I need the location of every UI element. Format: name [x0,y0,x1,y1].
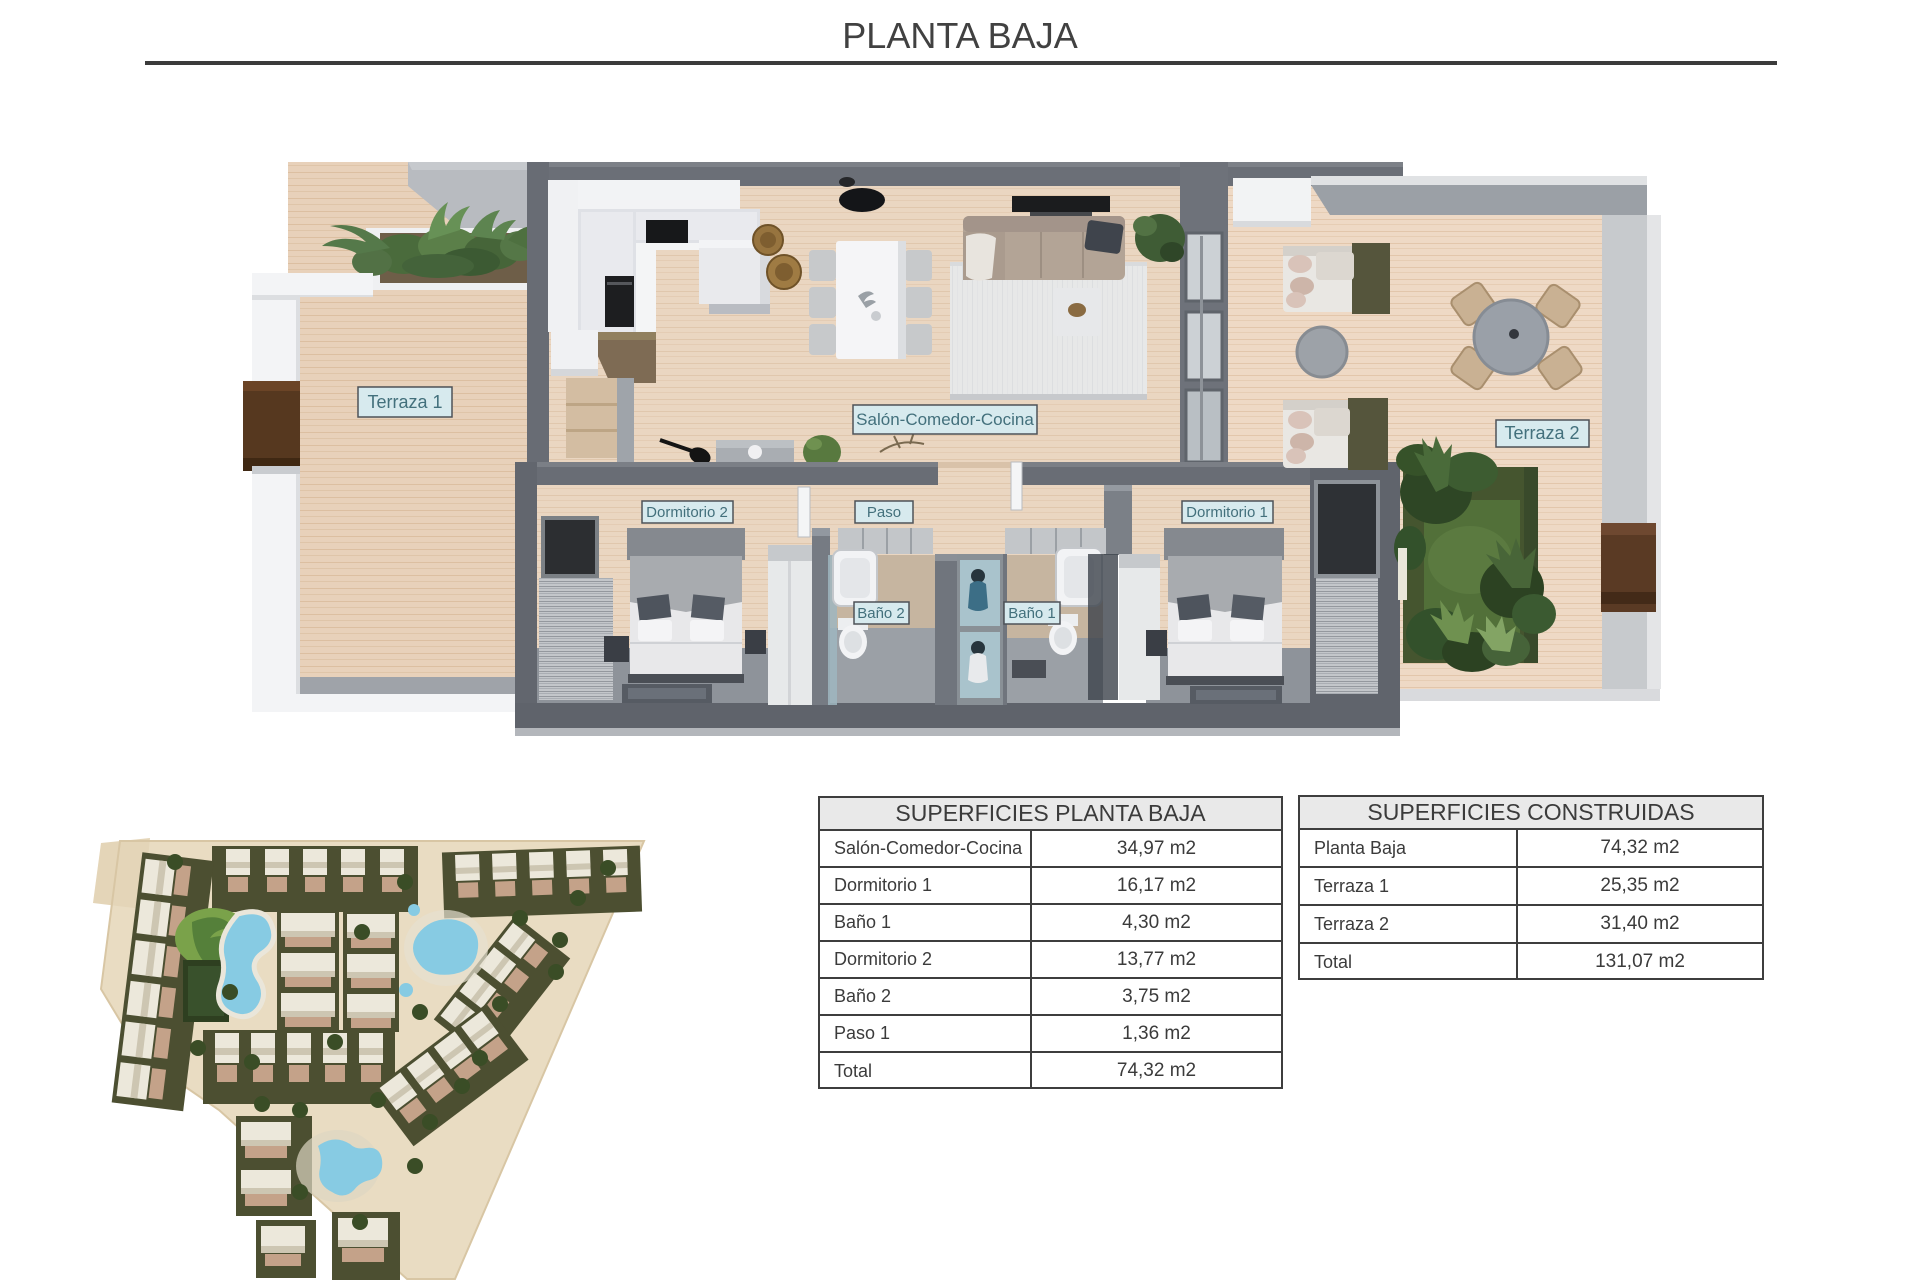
svg-text:Terraza 2: Terraza 2 [1504,423,1579,443]
svg-text:Paso: Paso [867,504,901,521]
svg-text:Terraza 1: Terraza 1 [367,392,442,412]
svg-text:Dormitorio 2: Dormitorio 2 [646,504,728,521]
svg-text:Baño 2: Baño 2 [857,605,905,622]
svg-text:Salón-Comedor-Cocina: Salón-Comedor-Cocina [856,410,1034,429]
svg-text:Baño 1: Baño 1 [1008,605,1056,622]
svg-text:Dormitorio 1: Dormitorio 1 [1186,504,1268,521]
